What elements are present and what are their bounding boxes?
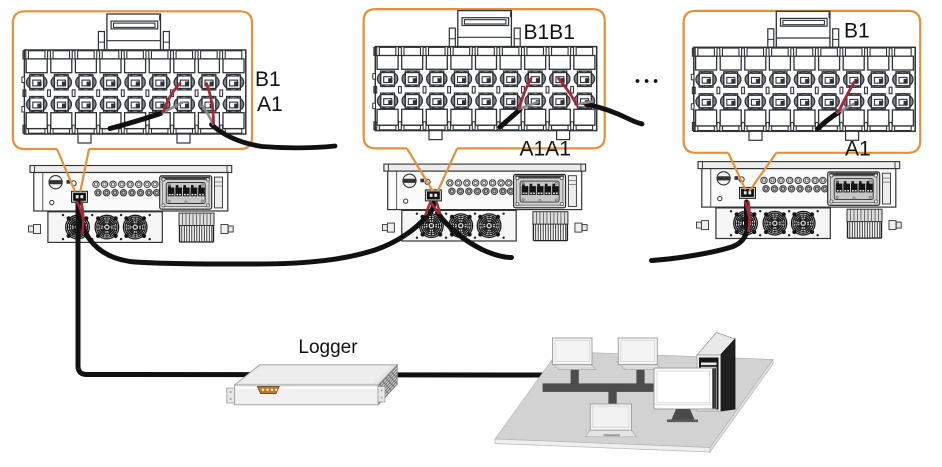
svg-text:A1: A1 xyxy=(257,93,283,116)
svg-text:A1: A1 xyxy=(845,138,871,161)
svg-text:B1B1: B1B1 xyxy=(524,21,575,44)
svg-text:B1: B1 xyxy=(255,68,281,91)
svg-text:Logger: Logger xyxy=(298,337,358,358)
svg-text:A1A1: A1A1 xyxy=(520,138,571,161)
svg-text:B1: B1 xyxy=(844,20,870,43)
